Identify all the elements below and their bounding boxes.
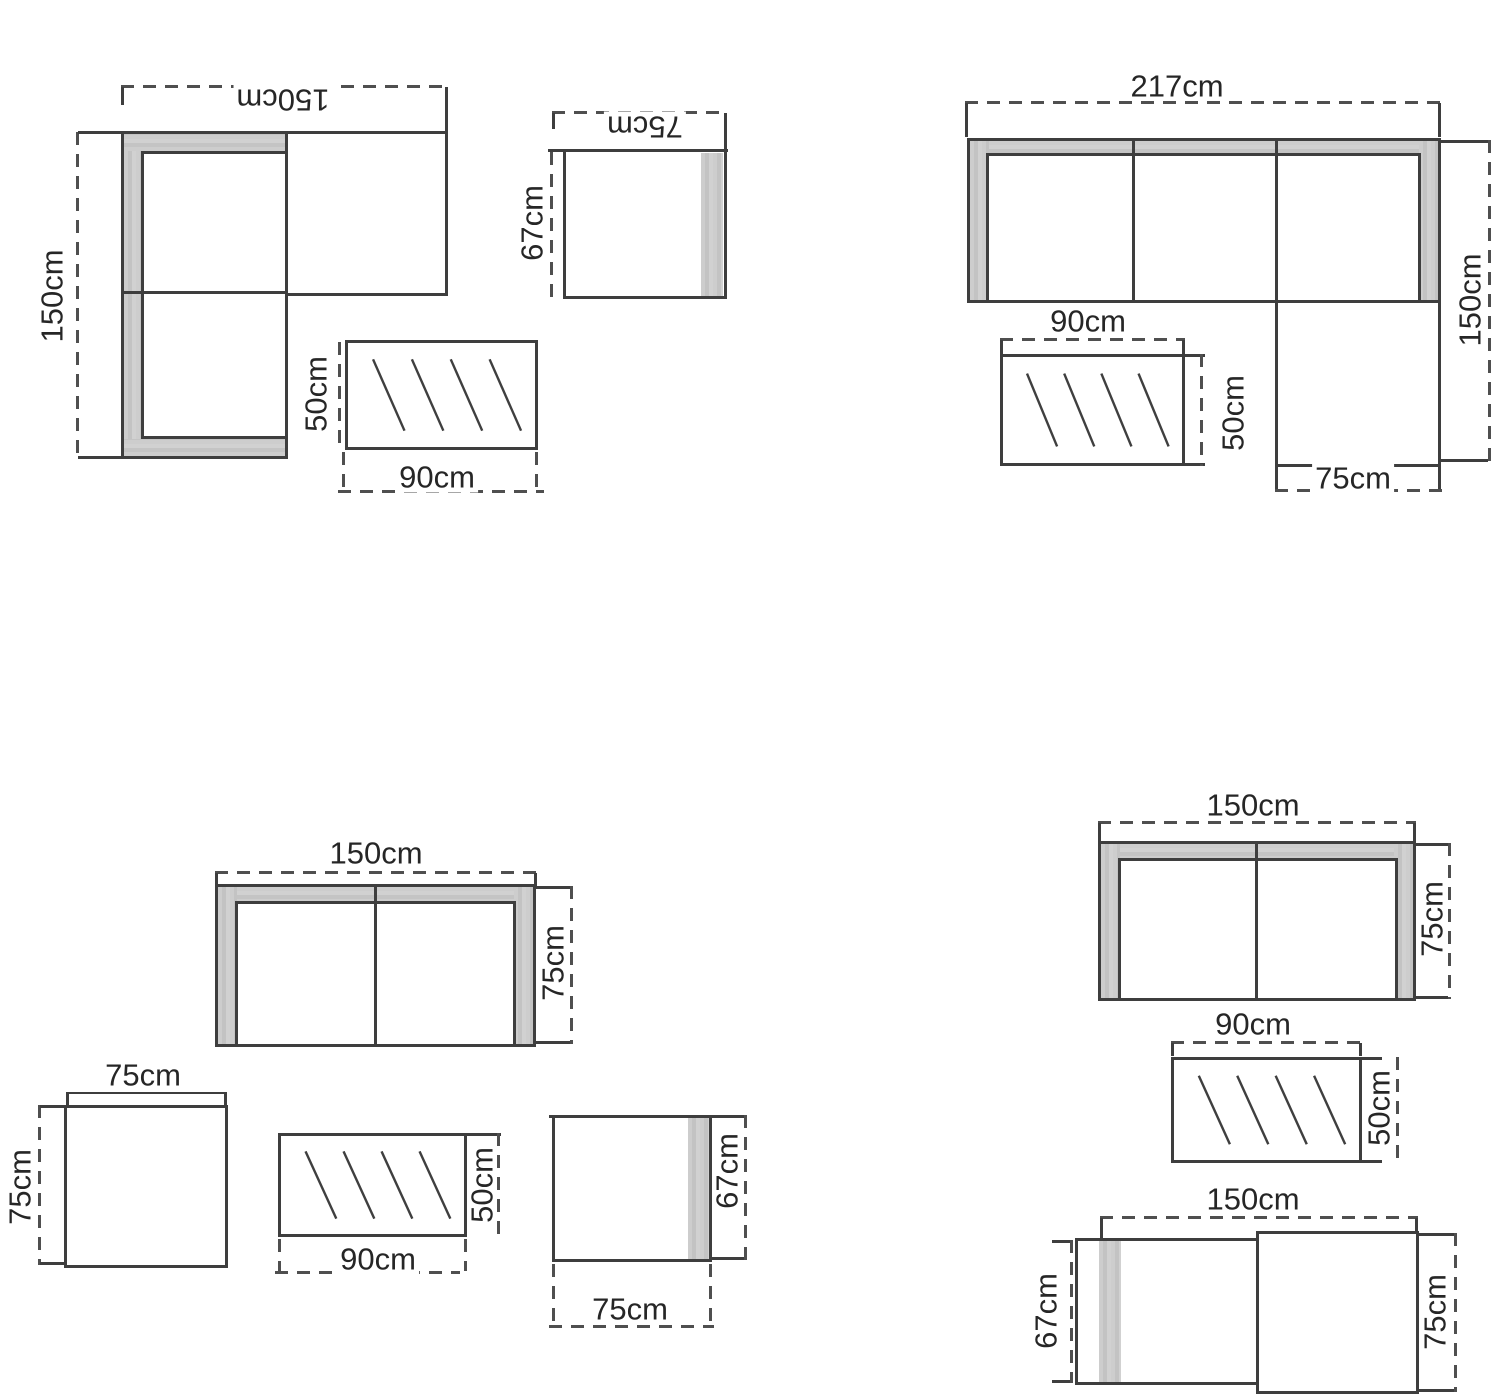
dim-line-bench-depth <box>1454 1233 1457 1392</box>
dim-line-chair-depth <box>1070 1240 1073 1383</box>
dim-extension <box>552 1264 555 1322</box>
dim-label-sofa-depth: 150cm <box>1455 250 1486 349</box>
dim-extension <box>1362 1160 1382 1163</box>
dim-tick <box>1419 1233 1454 1236</box>
dim-tick <box>1052 1240 1070 1243</box>
dim-label-armchair-depth: 67cm <box>712 1130 743 1212</box>
sofa-backrest-bottom <box>124 439 285 456</box>
dim-line-sofa-width <box>215 871 537 874</box>
sofa-right-seat <box>285 131 448 296</box>
dim-tick <box>712 1115 744 1118</box>
dim-label-sofa-depth: 150cm <box>37 246 68 345</box>
glass-hatch-icon <box>1175 1061 1358 1159</box>
dim-label-table-depth: 50cm <box>1364 1067 1395 1149</box>
sofa-seat-divider <box>374 884 377 1047</box>
dim-tick <box>1416 843 1448 846</box>
dim-tick <box>1359 1043 1362 1056</box>
dim-label-sofa-width: 150cm <box>326 838 425 869</box>
dim-line-bench-width <box>66 1092 227 1094</box>
dim-tick <box>1100 1218 1103 1238</box>
sofa-seat-divider <box>121 291 288 294</box>
dim-line-table-width <box>1000 338 1185 341</box>
sofa-backrest-top <box>124 134 285 151</box>
dim-tick <box>78 131 123 134</box>
dim-extension <box>464 1239 467 1271</box>
dim-extension <box>342 452 345 488</box>
dim-extension <box>278 1239 281 1271</box>
dim-tick <box>1419 1389 1454 1392</box>
dim-extension <box>535 452 538 488</box>
dim-tick <box>1438 103 1441 137</box>
bench-outline <box>64 1105 228 1268</box>
dim-label-sofa-width: 150cm <box>233 85 332 116</box>
dim-label-bench-depth: 75cm <box>5 1146 36 1228</box>
dim-tick <box>1441 140 1488 143</box>
sofa-seat-outline <box>1118 858 1398 998</box>
dim-line-sofa-width <box>1098 821 1416 824</box>
armchair-armrest <box>701 153 723 296</box>
dim-label-table-width: 90cm <box>396 462 478 493</box>
dim-line-combo-width <box>1100 1216 1418 1219</box>
dim-tick <box>536 1041 570 1044</box>
dim-tick <box>1413 823 1416 841</box>
sofa-armrest-right <box>514 887 533 1044</box>
dim-tick <box>78 456 123 459</box>
dim-label-table-width: 90cm <box>1212 1009 1294 1040</box>
dim-extension <box>1438 467 1441 491</box>
dim-label-armchair-width: 75cm <box>589 1294 671 1325</box>
dim-label-table-depth: 50cm <box>301 353 332 435</box>
sofa-seat-outline <box>986 153 1421 300</box>
dim-line-bench-depth <box>38 1105 41 1265</box>
sofa-seat-divider <box>1255 841 1258 1001</box>
dim-tick <box>1171 1043 1174 1056</box>
chaise-outline <box>1275 300 1441 467</box>
dim-label-bench-width: 75cm <box>102 1060 184 1091</box>
armchair-armrest <box>688 1118 709 1259</box>
dim-tick <box>40 1262 65 1265</box>
dim-line-sofa-depth <box>76 132 79 460</box>
dim-label-sofa-width: 217cm <box>1127 71 1226 102</box>
dim-line-table-width <box>1171 1041 1362 1044</box>
dim-label-chaise-width: 75cm <box>1312 463 1394 494</box>
dim-label-table-depth: 50cm <box>467 1144 498 1226</box>
dim-label-chair-depth: 67cm <box>1031 1270 1062 1352</box>
dim-label-sofa-depth: 75cm <box>538 922 569 1004</box>
dim-tick <box>1052 1380 1070 1383</box>
dim-label-sofa-depth: 75cm <box>1417 878 1448 960</box>
dim-tick <box>552 113 555 129</box>
dim-label-table-depth: 50cm <box>1218 372 1249 454</box>
dim-tick <box>1098 823 1101 841</box>
dim-tick <box>121 87 124 105</box>
dim-line-table-depth <box>1200 354 1203 466</box>
armchair-armrest <box>1099 1241 1121 1382</box>
dim-label-sofa-width: 150cm <box>1203 790 1302 821</box>
dim-extension <box>709 1264 712 1322</box>
dim-extension <box>1362 1057 1382 1060</box>
dim-tick <box>1182 340 1185 354</box>
dim-tick <box>536 886 570 889</box>
dim-tick <box>965 103 968 137</box>
dim-label-armchair-width: 75cm <box>604 112 686 143</box>
dim-tick <box>40 1105 65 1108</box>
sofa-armrest-right <box>1419 141 1438 300</box>
dim-line-table-depth <box>338 342 341 448</box>
dim-label-table-width: 90cm <box>337 1244 419 1275</box>
sofa-seat-divider <box>1132 138 1135 300</box>
dim-tick <box>724 113 727 149</box>
dim-line-armchair-depth <box>550 152 553 298</box>
sofa-backrest-left <box>124 134 141 456</box>
dim-tick <box>1000 340 1003 354</box>
sofa-seat-outline <box>141 151 285 439</box>
dim-tick <box>445 87 448 133</box>
glass-hatch-icon <box>1004 358 1181 462</box>
dim-tick <box>1415 1218 1418 1231</box>
dim-line-sofa-depth <box>1488 140 1491 462</box>
dim-extension <box>1275 467 1278 491</box>
sofa-seat-divider <box>1275 138 1278 300</box>
bench-outline <box>1256 1231 1419 1394</box>
dim-label-bench-depth: 75cm <box>1420 1271 1451 1353</box>
dim-label-table-width: 90cm <box>1047 306 1129 337</box>
dim-tick <box>1416 996 1448 999</box>
dim-extension <box>467 1133 501 1136</box>
glass-hatch-icon <box>349 344 534 446</box>
dim-tick <box>712 1257 744 1260</box>
dim-tick <box>1441 459 1488 462</box>
glass-hatch-icon <box>282 1137 463 1233</box>
dim-label-armchair-depth: 67cm <box>517 182 548 264</box>
furniture-dimension-diagram: 150cm 150cm 75cm 67cm 50cm 90cm 217cm <box>0 0 1500 1400</box>
dim-line-sofa-width <box>965 101 1442 104</box>
dim-label-combo-width: 150cm <box>1203 1184 1302 1215</box>
